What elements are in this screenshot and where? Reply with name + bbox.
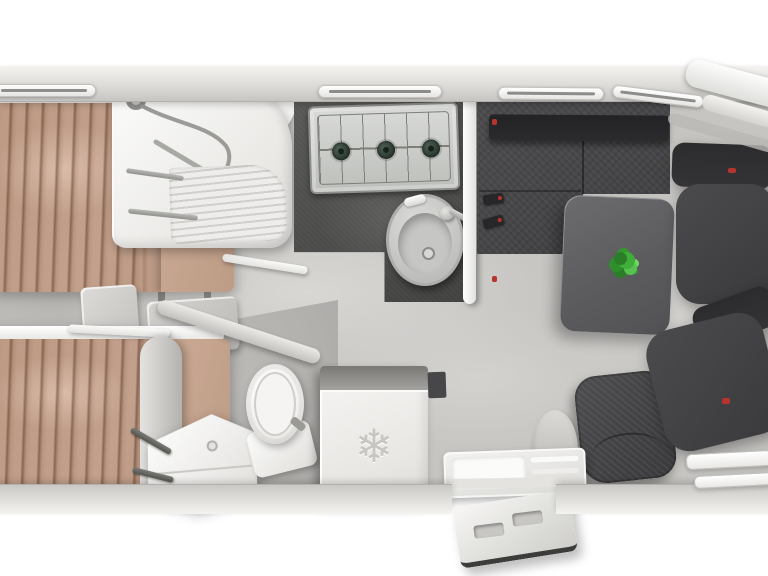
- bedding-folds: [0, 339, 144, 494]
- fridge: ❄: [320, 366, 428, 502]
- partition-wall: [463, 82, 476, 304]
- step-grip-slot: [512, 510, 543, 527]
- red-accent: [492, 119, 497, 125]
- bottom-side-wall-right: [556, 484, 768, 514]
- sofa-backrest: [489, 114, 669, 141]
- red-accent: [722, 398, 730, 404]
- red-accent: [728, 168, 736, 173]
- step-grip-slot: [473, 522, 504, 539]
- door-threshold: [446, 477, 562, 489]
- bottom-side-wall-left: [0, 484, 452, 514]
- sofa-cushion-seam: [479, 190, 581, 192]
- window-bedroom: [0, 84, 96, 97]
- red-accent: [492, 276, 497, 282]
- cab-seat-passenger: [652, 292, 768, 446]
- hob-burner: [422, 139, 441, 158]
- snowflake-icon: ❄: [355, 423, 394, 469]
- shower-cabin: [112, 84, 292, 248]
- window-kitchen: [318, 85, 442, 98]
- window-lounge: [498, 87, 604, 101]
- shower-door-ribbed: [169, 164, 288, 244]
- hob-burner: [377, 141, 396, 160]
- toilet: [246, 364, 304, 444]
- seat-cushion: [676, 184, 768, 304]
- floorplan-stage: ❄: [0, 0, 768, 576]
- gas-hob: [308, 102, 461, 195]
- seat-cushion: [641, 307, 768, 456]
- sofa-cushion-seam: [582, 141, 584, 194]
- fridge-vent-top: [320, 366, 428, 392]
- table-plant: [614, 252, 627, 265]
- seat-backrest: [671, 142, 768, 189]
- hob-burner: [332, 142, 351, 161]
- cab-seat-driver: [668, 142, 768, 304]
- step-rails: [530, 456, 578, 463]
- fridge-control-panel: [428, 372, 447, 399]
